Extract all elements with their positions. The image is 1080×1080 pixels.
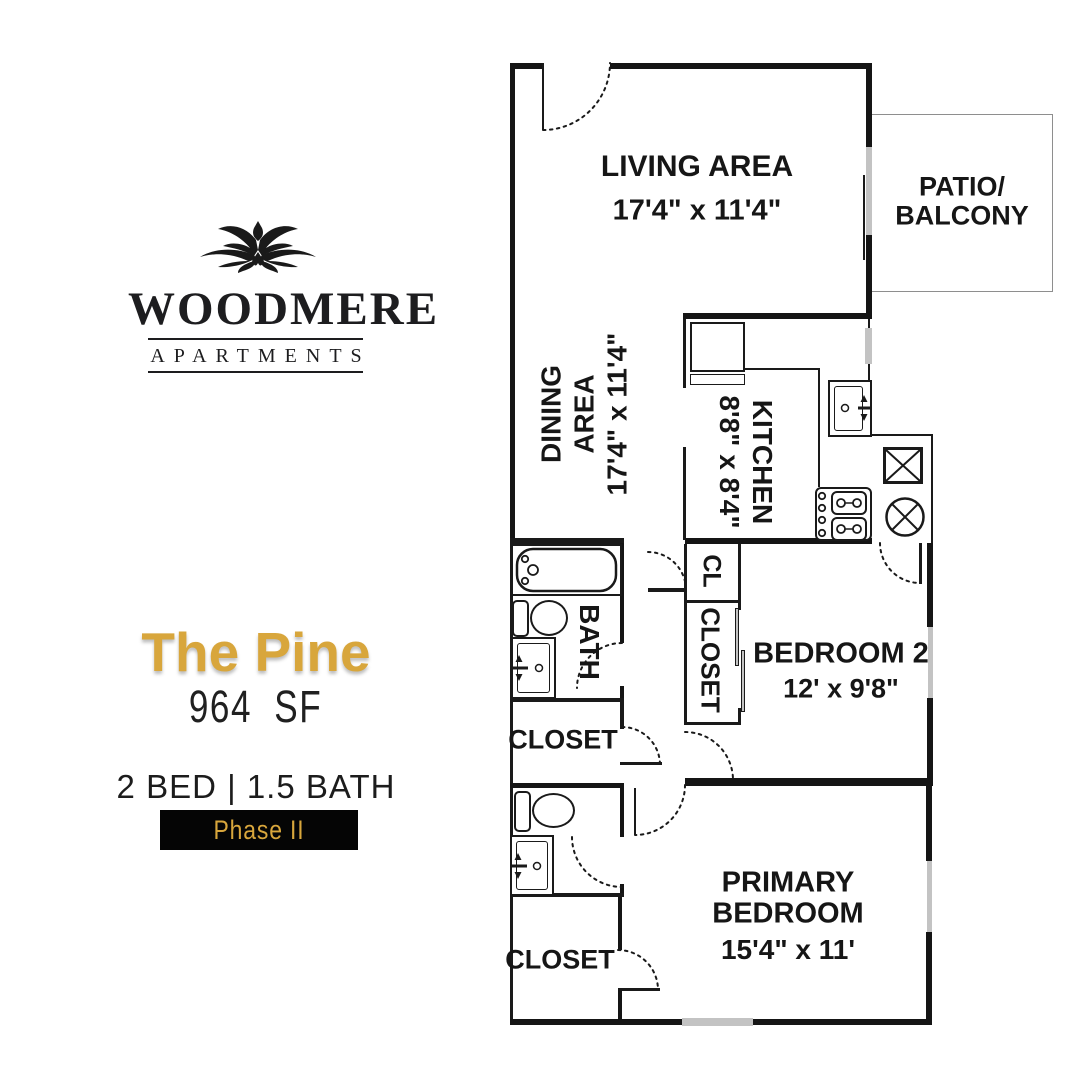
bathtub-icon — [517, 549, 616, 591]
bedroom2-dims: 12' x 9'8" — [783, 676, 899, 703]
living-area-label: LIVING AREA — [601, 152, 793, 182]
plan-details-overlay — [0, 0, 1080, 1080]
linen-closet-door-arc — [622, 727, 660, 765]
halfbath-door-arc — [572, 837, 622, 887]
primary-bedroom-label-line1: PRIMARY — [722, 869, 855, 898]
kitchen-name: KITCHEN — [746, 395, 779, 528]
primary-bedroom-label-line2: BEDROOM — [712, 900, 863, 929]
primary-bedroom-dims: 15'4" x 11' — [721, 936, 855, 964]
primary-closet-door-arc — [618, 950, 658, 990]
hall-door-arc — [648, 552, 686, 590]
dining-area-label: DINING AREA 17'4" x 11'4" — [535, 333, 634, 496]
dining-dims: 17'4" x 11'4" — [601, 333, 634, 496]
living-area-dims: 17'4" x 11'4" — [613, 197, 782, 226]
stove-burners — [819, 492, 866, 540]
kitchen-dims: 8'8" x 8'4" — [713, 395, 746, 528]
patio-label-line2: BALCONY — [895, 203, 1029, 230]
floorplan-flyer: WOODMERE APARTMENTS The Pine 964 SF 2 BE… — [0, 0, 1080, 1080]
washer-x-mark — [886, 450, 920, 481]
cl-closet-label: CL — [697, 554, 726, 587]
dryer-x-mark — [892, 504, 918, 530]
faucet-icon — [512, 655, 543, 681]
dining-line2: AREA — [568, 333, 601, 496]
patio-label-line1: PATIO/ — [919, 174, 1005, 201]
dining-line1: DINING — [535, 333, 568, 496]
hall-closet-label: CLOSET — [508, 727, 618, 754]
bedroom2-closet-label: CLOSET — [695, 607, 726, 712]
hall-corner-door-arc — [685, 732, 733, 780]
primary-door-arc — [635, 785, 685, 835]
bedroom2-door-arc — [880, 543, 920, 583]
bedroom2-label: BEDROOM 2 — [753, 640, 929, 669]
bath-label: BATH — [573, 604, 605, 680]
faucet-icon — [842, 395, 873, 421]
faucet-icon — [511, 853, 541, 879]
kitchen-label: KITCHEN 8'8" x 8'4" — [713, 395, 779, 528]
primary-closet-label: CLOSET — [505, 947, 615, 974]
entry-door-arc — [543, 63, 610, 130]
